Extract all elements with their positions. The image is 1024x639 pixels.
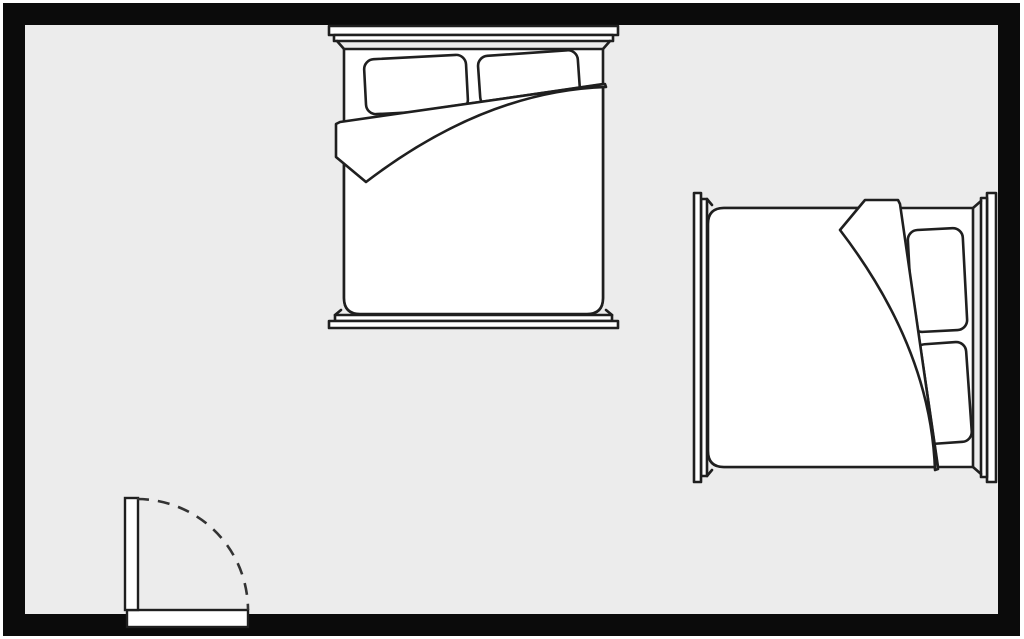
floor-plan-page xyxy=(0,0,1024,639)
bed-right[interactable] xyxy=(694,193,996,482)
floor-plan xyxy=(0,0,1024,639)
door-leaf[interactable] xyxy=(125,498,138,610)
bed-top[interactable] xyxy=(329,26,618,328)
door-opening xyxy=(127,610,248,627)
